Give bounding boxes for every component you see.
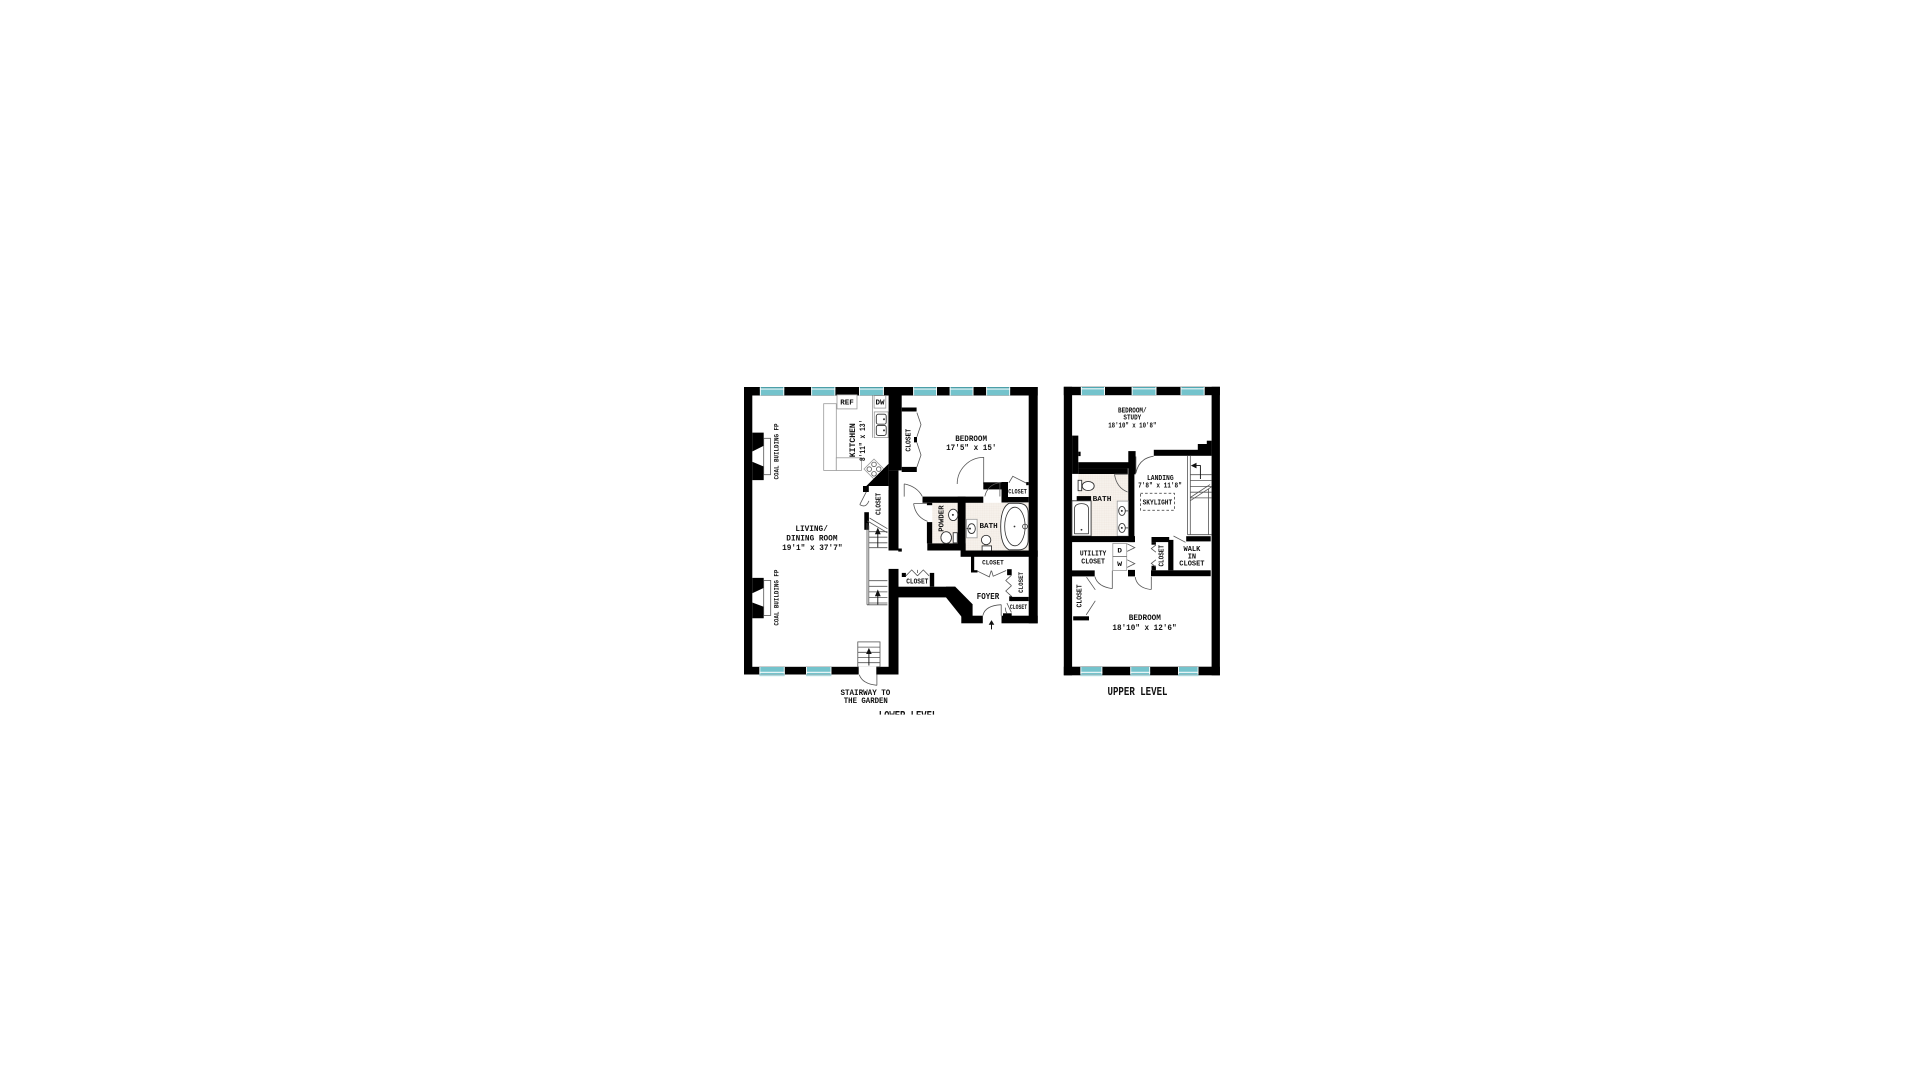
svg-text:7'8" x 11'8": 7'8" x 11'8"	[1138, 482, 1182, 490]
svg-text:CLOSET: CLOSET	[1008, 489, 1027, 496]
svg-text:BEDROOM: BEDROOM	[955, 435, 987, 444]
svg-text:W: W	[1117, 561, 1122, 568]
svg-text:CLOSET: CLOSET	[1179, 561, 1204, 569]
svg-text:19'1" x 37'7": 19'1" x 37'7"	[782, 544, 842, 553]
svg-text:8'11" x 13': 8'11" x 13'	[860, 420, 868, 462]
svg-text:POWDER: POWDER	[938, 505, 946, 532]
svg-text:SKYLIGHT: SKYLIGHT	[1143, 500, 1173, 508]
svg-text:17'5" x 15': 17'5" x 15'	[946, 444, 996, 453]
svg-text:FOYER: FOYER	[977, 591, 1000, 602]
svg-text:UPPER LEVEL: UPPER LEVEL	[1108, 685, 1168, 699]
svg-text:CLOSET: CLOSET	[906, 579, 928, 587]
svg-text:CLOSET: CLOSET	[1010, 604, 1028, 611]
svg-text:STUDY: STUDY	[1123, 415, 1141, 423]
svg-text:CLOSET: CLOSET	[1158, 545, 1166, 567]
svg-text:CLOSET: CLOSET	[1018, 572, 1025, 593]
svg-text:18'10" x 12'6": 18'10" x 12'6"	[1112, 623, 1176, 633]
svg-text:KITCHEN: KITCHEN	[850, 423, 858, 457]
svg-text:18'10" x 10'8": 18'10" x 10'8"	[1108, 422, 1156, 430]
svg-text:CLOSET: CLOSET	[905, 429, 913, 452]
svg-text:BATH: BATH	[1093, 496, 1112, 504]
svg-text:BATH: BATH	[980, 523, 999, 531]
svg-text:DW: DW	[876, 399, 886, 407]
svg-text:LIVING/: LIVING/	[795, 525, 828, 534]
svg-text:BEDROOM: BEDROOM	[1129, 613, 1161, 623]
svg-text:CLOSET: CLOSET	[1081, 559, 1105, 567]
svg-text:REF: REF	[840, 400, 854, 408]
svg-text:DINING ROOM: DINING ROOM	[786, 535, 837, 544]
svg-text:CLOSET: CLOSET	[875, 493, 883, 515]
svg-text:D: D	[1117, 547, 1122, 554]
svg-text:COAL BUILDING FP: COAL BUILDING FP	[773, 424, 781, 480]
svg-text:UTILITY: UTILITY	[1080, 550, 1107, 558]
svg-text:CLOSET: CLOSET	[1077, 584, 1085, 607]
svg-text:COAL BUILDING FP: COAL BUILDING FP	[773, 570, 781, 626]
svg-text:THE GARDEN: THE GARDEN	[844, 697, 888, 706]
svg-text:CLOSET: CLOSET	[982, 560, 1004, 567]
